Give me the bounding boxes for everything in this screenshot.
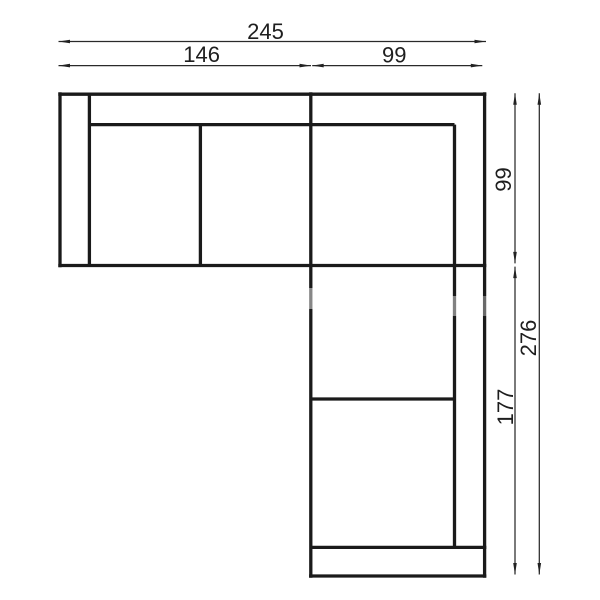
svg-text:146: 146 bbox=[183, 42, 220, 67]
svg-text:99: 99 bbox=[382, 43, 406, 68]
svg-text:245: 245 bbox=[247, 19, 284, 44]
svg-text:276: 276 bbox=[516, 320, 541, 357]
svg-text:177: 177 bbox=[493, 389, 518, 426]
svg-text:99: 99 bbox=[491, 167, 516, 191]
